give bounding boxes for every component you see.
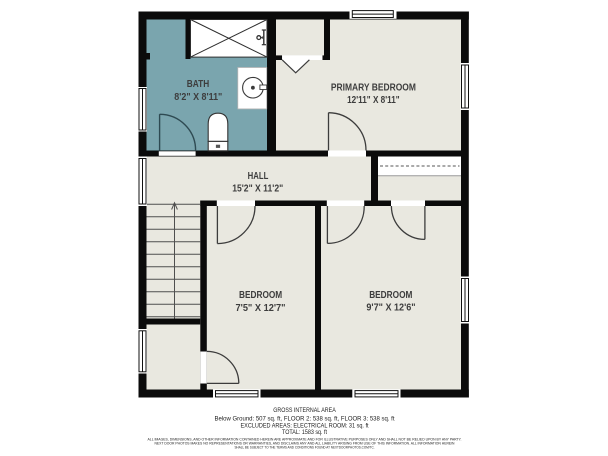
- svg-text:9'7" X 12'6": 9'7" X 12'6": [366, 303, 415, 314]
- svg-text:GROSS INTERNAL AREA: GROSS INTERNAL AREA: [273, 407, 336, 414]
- svg-text:8'2" X 8'11": 8'2" X 8'11": [174, 92, 222, 103]
- svg-text:SHALL BE SUBJECT TO THE TERMS: SHALL BE SUBJECT TO THE TERMS AND CONDIT…: [235, 445, 375, 450]
- svg-text:Below Ground: 507 sq. ft, FLOO: Below Ground: 507 sq. ft, FLOOR 2: 538 s…: [215, 415, 395, 422]
- svg-text:7'5" X 12'7": 7'5" X 12'7": [236, 303, 286, 314]
- svg-text:12'11" X 8'11": 12'11" X 8'11": [347, 95, 400, 106]
- svg-text:HALL: HALL: [248, 171, 269, 182]
- svg-text:15'2" X 11'2": 15'2" X 11'2": [232, 184, 283, 195]
- svg-text:BEDROOM: BEDROOM: [239, 290, 282, 301]
- svg-text:BEDROOM: BEDROOM: [369, 290, 412, 301]
- svg-text:TOTAL: 1583 sq. ft: TOTAL: 1583 sq. ft: [282, 429, 327, 436]
- svg-text:BATH: BATH: [187, 79, 209, 90]
- svg-text:PRIMARY BEDROOM: PRIMARY BEDROOM: [331, 82, 416, 93]
